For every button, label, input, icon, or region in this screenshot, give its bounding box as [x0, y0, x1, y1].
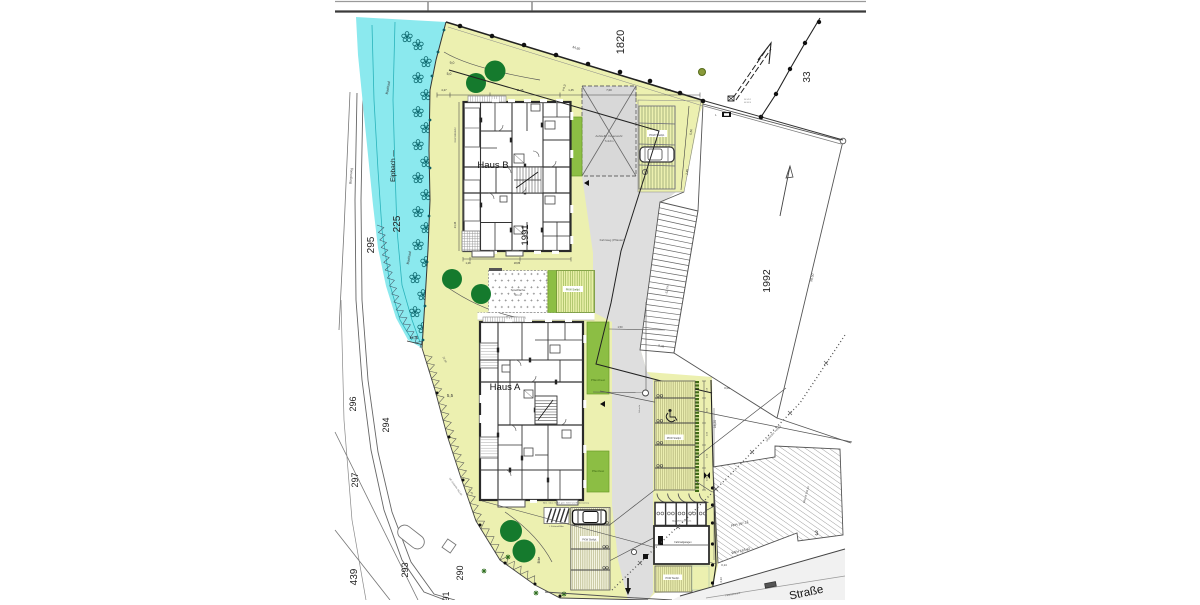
- svg-text:1820: 1820: [615, 30, 627, 54]
- svg-text:1,28: 1,28: [465, 261, 471, 265]
- svg-text:3,13: 3,13: [719, 577, 723, 583]
- svg-text:1992: 1992: [761, 269, 773, 293]
- svg-text:225: 225: [392, 215, 403, 232]
- svg-text:5,0: 5,0: [447, 72, 452, 76]
- svg-text:1,50: 1,50: [617, 325, 623, 329]
- svg-text:294: 294: [381, 417, 391, 432]
- svg-text:439: 439: [349, 568, 360, 585]
- svg-text:9,0: 9,0: [450, 61, 455, 65]
- svg-text:2,45: 2,45: [685, 169, 690, 175]
- svg-text:1,45: 1,45: [568, 88, 574, 92]
- svg-text:Aufstellfl. Feuerwehr: Aufstellfl. Feuerwehr: [595, 134, 622, 138]
- svg-text:Fahrradgaragen: Fahrradgaragen: [674, 541, 692, 544]
- svg-text:295: 295: [366, 236, 377, 253]
- svg-text:33: 33: [802, 71, 813, 83]
- svg-text:Grenzabstand: Grenzabstand: [454, 127, 457, 143]
- svg-text:Haus A: Haus A: [490, 382, 521, 393]
- svg-text:16,20: 16,20: [713, 420, 717, 428]
- svg-text:14,31: 14,31: [410, 336, 419, 340]
- svg-text:7x12m: 7x12m: [604, 139, 614, 143]
- svg-text:4,27: 4,27: [441, 88, 447, 92]
- svg-text:5,5: 5,5: [447, 393, 454, 398]
- svg-text:291: 291: [441, 591, 451, 600]
- svg-text:7,00: 7,00: [606, 88, 612, 92]
- svg-text:Schacht: Schacht: [638, 405, 641, 413]
- svg-text:Eipbach —: Eipbach —: [390, 150, 397, 182]
- svg-text:PKW Stellpl.: PKW Stellpl.: [666, 577, 680, 580]
- svg-text:5,50: 5,50: [689, 129, 694, 135]
- svg-text:8,00: 8,00: [665, 88, 671, 92]
- svg-text:1991: 1991: [520, 224, 531, 245]
- svg-text:Haus B: Haus B: [477, 160, 508, 171]
- svg-text:23,46: 23,46: [453, 221, 457, 228]
- svg-text:f. Fahrrad Bike: f. Fahrrad Bike: [549, 525, 564, 528]
- svg-text:1.: 1.: [715, 114, 717, 117]
- svg-text:Spielfläche: Spielfläche: [511, 288, 526, 292]
- svg-text:30.141.2: 30.141.2: [744, 99, 751, 101]
- svg-text:50 m²: 50 m²: [515, 293, 522, 297]
- svg-text:290: 290: [455, 565, 465, 580]
- svg-text:0,06: 0,06: [724, 386, 730, 390]
- svg-text:PKW Stellpl.: PKW Stellpl.: [667, 436, 682, 440]
- svg-text:297: 297: [350, 472, 360, 487]
- svg-text:296: 296: [348, 396, 358, 411]
- svg-text:Pflanzbeet: Pflanzbeet: [592, 469, 605, 473]
- svg-text:PKW Stellpl.: PKW Stellpl.: [582, 537, 597, 541]
- svg-text:Abst. reduz. Stellpl. gem. GaV: Abst. reduz. Stellpl. gem. GaVO und Stel…: [543, 502, 589, 505]
- svg-text:18,86: 18,86: [514, 261, 521, 265]
- svg-text:PKW Stellpl.: PKW Stellpl.: [566, 288, 581, 292]
- svg-text:0,14: 0,14: [721, 563, 727, 567]
- svg-text:Fahrweg (Pflaster): Fahrweg (Pflaster): [600, 238, 625, 242]
- svg-text:293: 293: [400, 562, 410, 577]
- svg-text:40.162.6: 40.162.6: [744, 102, 751, 104]
- svg-text:Bike: Bike: [537, 557, 541, 564]
- svg-text:Pflanzbeet: Pflanzbeet: [591, 378, 605, 382]
